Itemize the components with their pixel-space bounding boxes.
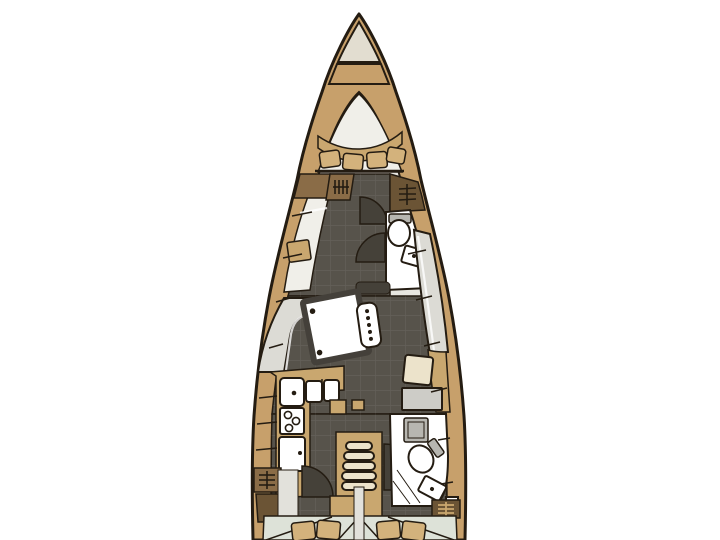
forward-berth-cushion [287, 240, 312, 263]
port-bulkhead-cabinet [294, 174, 330, 198]
galley-double-sink-right [324, 380, 339, 401]
step-tread [342, 472, 376, 480]
step-tread [344, 452, 374, 460]
fridge-handle [298, 451, 302, 455]
yacht-layout-canvas [0, 0, 720, 540]
cockpit-sole-strip [354, 487, 364, 540]
pillow [401, 521, 426, 540]
pillow [366, 151, 387, 168]
companionway-steps [342, 442, 376, 490]
pillow [316, 520, 340, 540]
table-end-cabinet [356, 282, 390, 294]
toilet [388, 220, 410, 246]
nav-seat [403, 355, 434, 386]
faucet-dot [292, 391, 297, 396]
galley-double-sink-left [306, 381, 322, 402]
pillow [319, 150, 341, 169]
port-aft-berth-head [330, 496, 356, 517]
port-aft-passage [278, 470, 298, 516]
pillow [291, 521, 316, 540]
yacht-layout-plan [0, 0, 720, 540]
cockpit-locker-left [330, 400, 346, 414]
step-tread [343, 462, 375, 470]
pillow [386, 147, 406, 165]
step-tread [346, 442, 372, 450]
bow-deck-band [329, 64, 389, 84]
pillow [376, 520, 400, 540]
cockpit-locker-right [352, 400, 364, 410]
pillow [342, 153, 363, 171]
